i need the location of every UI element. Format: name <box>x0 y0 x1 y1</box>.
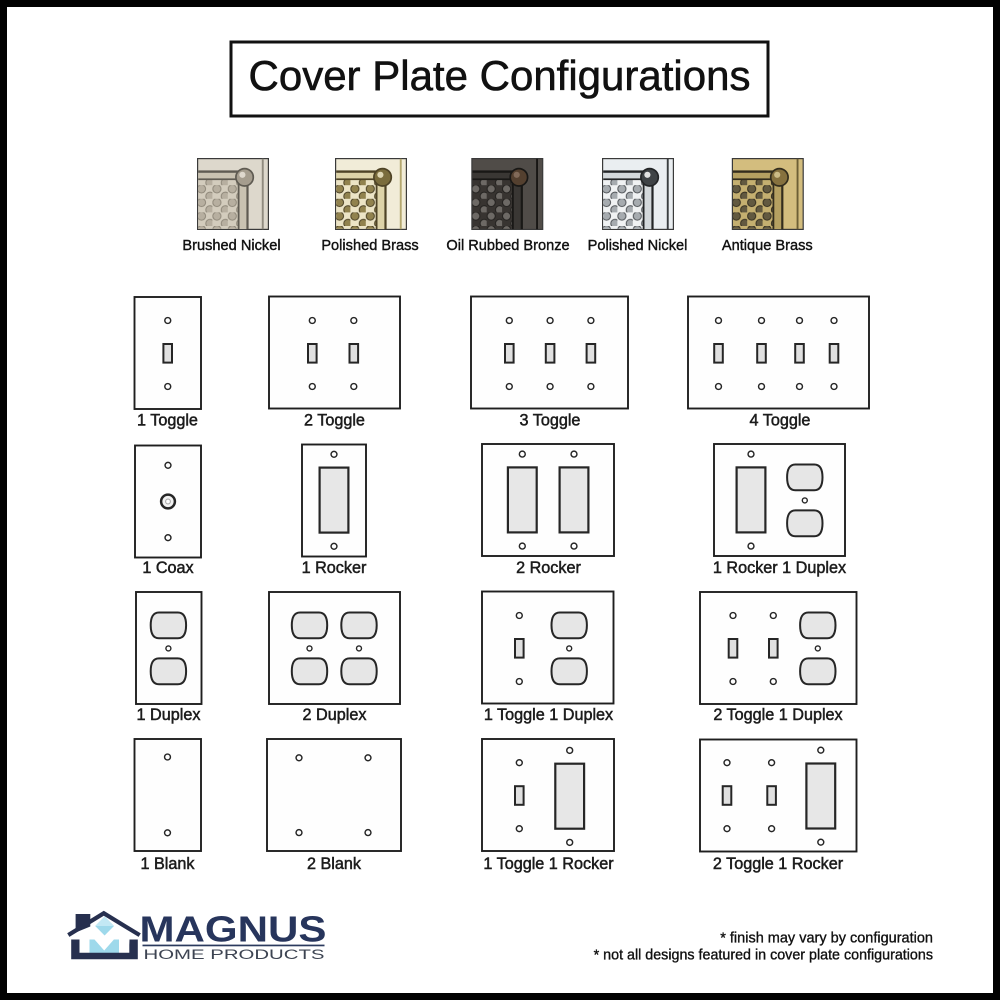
svg-text:2 Blank: 2 Blank <box>307 855 362 873</box>
svg-text:1 Blank: 1 Blank <box>141 855 196 873</box>
svg-text:Cover Plate Configurations: Cover Plate Configurations <box>249 52 751 99</box>
svg-text:* not all designs featured in: * not all designs featured in cover plat… <box>594 947 933 963</box>
svg-text:HOME PRODUCTS: HOME PRODUCTS <box>144 947 325 963</box>
svg-text:MAGNUS: MAGNUS <box>140 909 327 950</box>
svg-text:1 Rocker: 1 Rocker <box>302 559 367 577</box>
svg-text:1 Toggle 1 Rocker: 1 Toggle 1 Rocker <box>483 855 614 873</box>
svg-text:2 Toggle 1 Duplex: 2 Toggle 1 Duplex <box>713 706 842 724</box>
svg-text:2 Rocker: 2 Rocker <box>516 559 581 577</box>
svg-text:Antique Brass: Antique Brass <box>722 238 813 254</box>
svg-text:2 Duplex: 2 Duplex <box>303 706 367 724</box>
svg-text:Polished Nickel: Polished Nickel <box>588 238 688 254</box>
svg-text:1 Rocker 1 Duplex: 1 Rocker 1 Duplex <box>713 559 846 577</box>
svg-text:1 Toggle: 1 Toggle <box>137 412 198 430</box>
svg-text:2 Toggle 1 Rocker: 2 Toggle 1 Rocker <box>713 855 844 873</box>
svg-text:Brushed Nickel: Brushed Nickel <box>182 238 280 254</box>
svg-text:Oil Rubbed Bronze: Oil Rubbed Bronze <box>446 238 569 254</box>
svg-text:2 Toggle: 2 Toggle <box>304 412 365 430</box>
svg-text:1 Toggle 1 Duplex: 1 Toggle 1 Duplex <box>484 706 613 724</box>
svg-text:3 Toggle: 3 Toggle <box>520 412 581 430</box>
svg-text:Polished Brass: Polished Brass <box>321 238 418 254</box>
svg-text:* finish may vary by configura: * finish may vary by configuration <box>720 931 933 947</box>
svg-text:1 Duplex: 1 Duplex <box>137 706 201 724</box>
svg-text:1 Coax: 1 Coax <box>142 559 193 577</box>
svg-text:4 Toggle: 4 Toggle <box>750 412 811 430</box>
